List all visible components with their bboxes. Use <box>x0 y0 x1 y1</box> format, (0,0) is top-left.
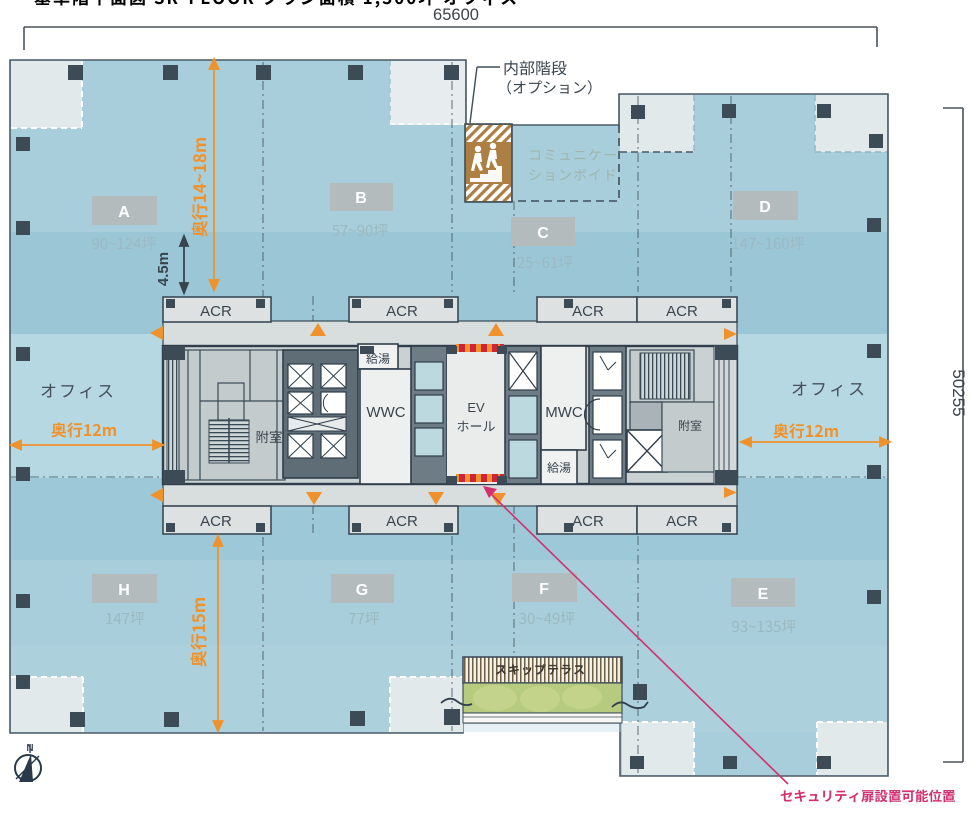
svg-text:B: B <box>355 190 367 207</box>
svg-text:MWC: MWC <box>545 404 583 421</box>
svg-text:ACR: ACR <box>200 513 232 530</box>
svg-text:50255: 50255 <box>949 369 968 416</box>
svg-text:ACR: ACR <box>666 513 698 530</box>
svg-text:ACR: ACR <box>572 513 604 530</box>
svg-text:ACR: ACR <box>572 303 604 320</box>
svg-text:ACR: ACR <box>666 303 698 320</box>
svg-text:N: N <box>26 743 33 754</box>
svg-text:F: F <box>539 581 549 598</box>
svg-text:A: A <box>118 204 130 221</box>
svg-text:EV: EV <box>467 400 485 415</box>
svg-text:4.5m: 4.5m <box>155 252 172 286</box>
svg-text:D: D <box>759 199 771 216</box>
svg-text:E: E <box>758 586 769 603</box>
svg-text:ACR: ACR <box>200 303 232 320</box>
svg-text:65600: 65600 <box>433 6 479 24</box>
svg-text:WWC: WWC <box>366 404 405 421</box>
svg-text:C: C <box>537 225 549 242</box>
svg-text:H: H <box>118 582 130 599</box>
svg-text:G: G <box>356 582 368 599</box>
svg-text:ACR: ACR <box>386 513 418 530</box>
svg-text:ACR: ACR <box>386 303 418 320</box>
